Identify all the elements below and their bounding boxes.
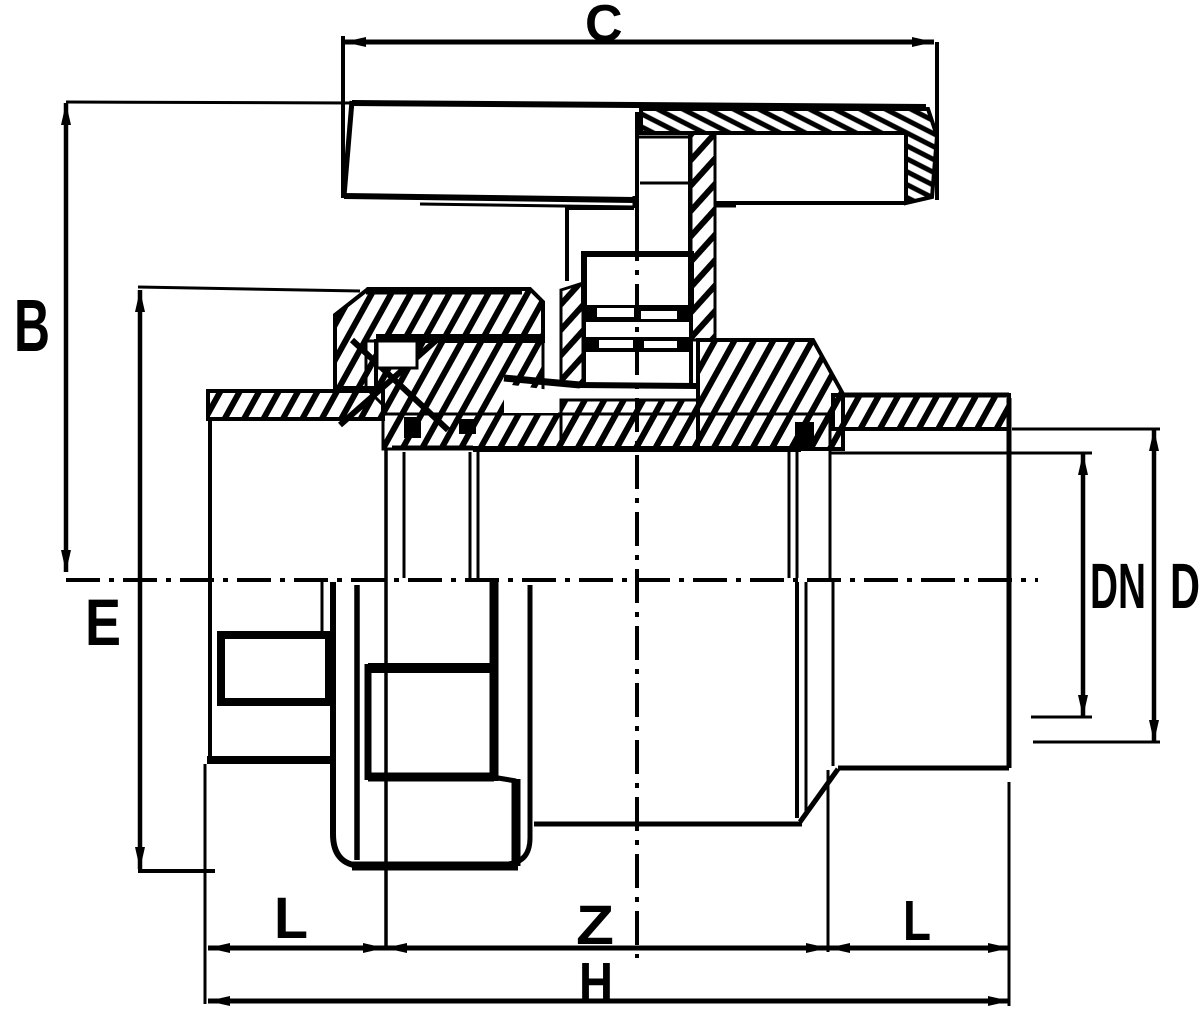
svg-text:B: B bbox=[14, 284, 50, 367]
svg-text:E: E bbox=[85, 585, 121, 659]
svg-text:C: C bbox=[585, 0, 623, 53]
svg-text:H: H bbox=[579, 951, 613, 1015]
svg-text:DN: DN bbox=[1090, 550, 1146, 622]
svg-text:D: D bbox=[1170, 550, 1200, 622]
svg-text:L: L bbox=[274, 886, 308, 951]
svg-text:L: L bbox=[903, 889, 931, 953]
svg-text:Z: Z bbox=[576, 893, 614, 956]
